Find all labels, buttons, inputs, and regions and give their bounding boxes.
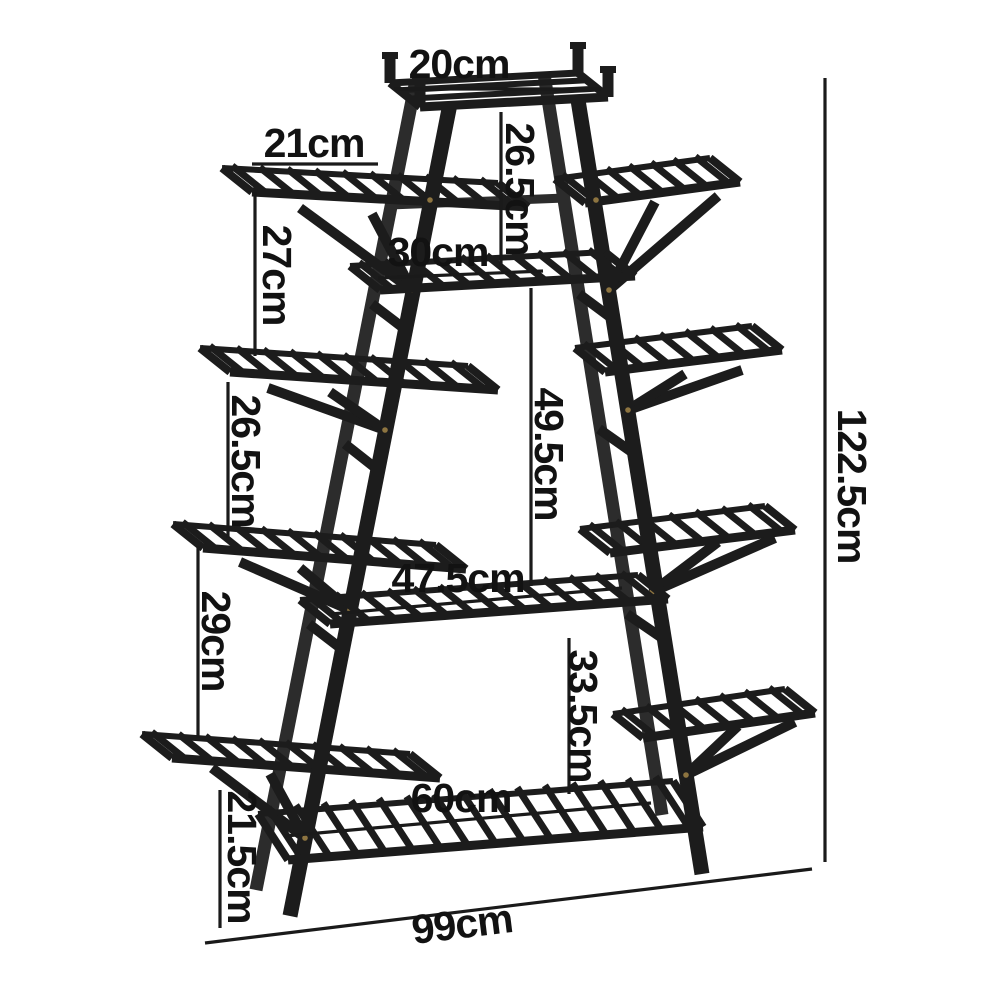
plant-stand-dimension-diagram: 20cm 21cm 26.5cm 27cm 30cm 26.5cm [0,0,1000,1000]
dimension-label: 47.5cm [391,555,524,601]
dimension-overall-height: 122.5cm [825,78,875,862]
left-wing-shelf-tier3 [200,346,498,390]
dimension-label: 33.5cm [560,649,606,782]
dimension-label: 49.5cm [526,387,572,520]
top-shelf-post [573,46,584,73]
dimension-label: 29cm [193,591,239,692]
screw-dot [302,835,308,841]
screw-dot [625,407,631,413]
screw-dot [382,427,388,433]
dimension-label: 27cm [254,225,300,326]
dimension-top-to-second-shelf-height: 26.5cm [497,112,543,267]
dimension-left-tier2-to-tier3-height: 27cm [254,192,300,356]
screw-dot [683,772,689,778]
dimension-label: 26.5cm [497,122,543,255]
dimension-label: 21.5cm [219,790,265,923]
dimension-label: 20cm [409,41,510,87]
dimension-left-tier4-to-tier5-height: 29cm [193,546,239,738]
screw-dot [427,197,433,203]
dimension-upper-left-shelf-width: 21cm [252,120,378,166]
dimension-label: 122.5cm [829,409,875,564]
top-shelf-post [385,56,396,83]
dimension-left-tier5-to-floor-height: 21.5cm [219,790,265,928]
dimension-second-to-middle-shelf-height: 49.5cm [526,288,572,586]
screw-dot [606,287,612,293]
dimension-label: 26.5cm [223,394,269,527]
dimension-left-tier3-to-tier4-height: 26.5cm [223,382,269,538]
right-wing-shelf-tier3 [575,325,782,372]
dimension-label: 30cm [388,229,489,275]
diagram-canvas: 20cm 21cm 26.5cm 27cm 30cm 26.5cm [0,0,1000,1000]
left-wing-shelf-tier2 [222,166,528,207]
wing-brace [240,562,350,610]
dimension-label: 60cm [411,775,512,821]
dimension-label: 99cm [409,895,515,953]
dimension-label: 21cm [264,120,365,166]
dimension-middle-to-bottom-shelf-height: 33.5cm [560,638,606,794]
screw-dot [593,197,599,203]
